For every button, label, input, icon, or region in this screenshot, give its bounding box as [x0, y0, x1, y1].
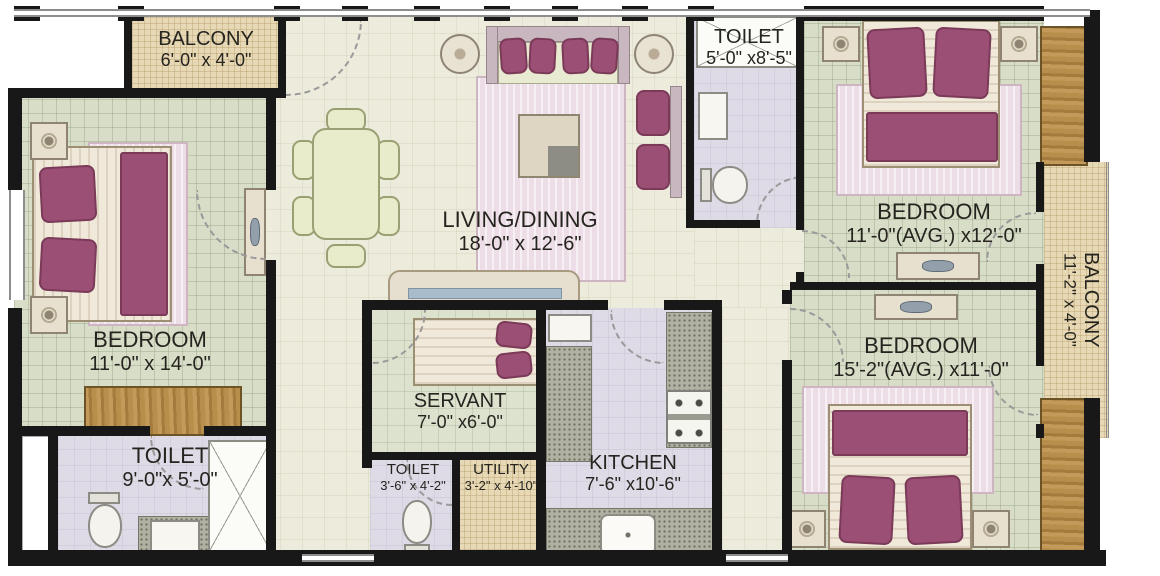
- wall-outer-right-bottom: [1084, 398, 1100, 552]
- wc-bowl: [402, 500, 432, 544]
- nightstand: [822, 26, 860, 62]
- side-table: [440, 34, 480, 74]
- side-table: [634, 34, 674, 74]
- sofa-cushion: [528, 37, 557, 74]
- room-label-servant: SERVANT 7'-0" x6'-0": [380, 390, 540, 433]
- wall-bedroom-living: [266, 96, 276, 190]
- sofa-cushion: [561, 37, 590, 74]
- wall-outer-bottom: [8, 550, 1106, 566]
- room-label-bedroom-left: BEDROOM 11'-0" x 14'-0": [40, 328, 260, 375]
- room-label-bedroom-top-right: BEDROOM 11'-0"(AVG.) x12'-0": [824, 200, 1044, 247]
- nightstand: [972, 510, 1010, 548]
- sofa-cushion: [499, 37, 528, 75]
- wall-bedroom-br-left: [782, 360, 792, 562]
- floor-plan: BALCONY 6'-0" x 4'-0" BEDROOM 11'-0" x 1…: [0, 0, 1160, 576]
- sofa-arm: [618, 26, 630, 84]
- kitchen-counter-left: [546, 346, 592, 462]
- pillow: [904, 475, 963, 546]
- dresser: [874, 294, 958, 320]
- window: [14, 9, 1090, 17]
- wall-servant-left: [362, 300, 372, 468]
- coffee-table-tray: [548, 146, 578, 176]
- wc-bowl: [88, 504, 122, 548]
- pillow: [495, 350, 534, 380]
- wc-tank: [88, 492, 120, 504]
- room-label-toilet-left: TOILET 9'-0"x 5'-0": [80, 444, 260, 491]
- room-label-balcony-right: BALCONY 11'-2" x 4'-0": [1048, 185, 1102, 415]
- dresser-knob: [900, 301, 932, 313]
- wall-bedroom-living: [266, 260, 276, 436]
- tv-screen: [408, 288, 562, 299]
- wall-outer-left: [8, 436, 22, 562]
- room-label-living-dining: LIVING/DINING 18'-0" x 12'-6": [390, 208, 650, 255]
- window: [302, 554, 374, 562]
- shaft: [22, 436, 50, 552]
- wc-tank: [700, 168, 712, 202]
- room-label-bedroom-bottom-right: BEDROOM 15'-2"(AVG.) x11'-0": [806, 334, 1036, 381]
- pillow: [932, 27, 992, 100]
- wall-shaft: [48, 436, 58, 550]
- window: [9, 190, 25, 300]
- window: [938, 9, 994, 17]
- pillow: [495, 320, 534, 350]
- dresser-knob: [922, 260, 954, 272]
- wall-balcony-left: [124, 14, 132, 96]
- wall-kitchen-right: [712, 300, 722, 562]
- wall-bedroom-bottom: [8, 426, 150, 436]
- washbasin: [150, 520, 200, 552]
- window: [844, 9, 900, 17]
- wall-balcony-right-inner: [1036, 264, 1044, 366]
- window: [726, 554, 788, 562]
- wall-toilet-top-left: [686, 14, 694, 228]
- room-label-toilet-small: TOILET 3'-6" x 4'-2": [368, 462, 458, 493]
- wall-servant-top: [362, 300, 608, 310]
- armchair-cushion: [636, 144, 670, 190]
- dining-chair: [326, 244, 366, 268]
- nightstand: [788, 510, 826, 548]
- room-label-balcony-top: BALCONY 6'-0" x 4'-0": [136, 28, 276, 71]
- nightstand: [1000, 26, 1038, 62]
- wc-bowl: [712, 166, 748, 204]
- wardrobe-top-right: [1040, 26, 1088, 166]
- wall-outer-left: [8, 308, 22, 436]
- pillow: [39, 165, 98, 224]
- wall-balcony-right: [278, 14, 286, 92]
- wall-toilet-left-right: [266, 436, 276, 550]
- wall-bedroom-bottom: [204, 426, 276, 436]
- blanket: [866, 112, 998, 162]
- wall-bedroom-br-left: [782, 290, 792, 304]
- nightstand: [30, 122, 68, 160]
- room-label-utility: UTILITY 3'-2" x 4'-10": [456, 462, 546, 493]
- wall-balcony-right-inner: [1036, 424, 1044, 438]
- sofa-arm: [486, 26, 498, 84]
- pillow: [866, 27, 928, 100]
- washbasin: [698, 92, 728, 140]
- room-label-kitchen: KITCHEN 7'-6" x10'-6": [548, 452, 718, 495]
- blanket: [120, 152, 168, 316]
- fridge: [548, 314, 592, 342]
- dresser: [896, 252, 980, 280]
- armchair-cushion: [636, 90, 670, 136]
- room-label-toilet-top: TOILET 5'-0" x8'-5": [696, 26, 802, 69]
- wall-bedroom-top: [8, 88, 286, 98]
- stove: [666, 390, 712, 444]
- wardrobe-bottom-right: [1040, 398, 1088, 562]
- blanket: [832, 410, 968, 456]
- wall-outer-left: [8, 96, 22, 190]
- wall-servant-bottom: [362, 452, 544, 460]
- armchair-back: [670, 86, 682, 198]
- wall-bedrooms-divider: [790, 282, 1044, 290]
- pillow: [838, 475, 895, 546]
- dining-table: [312, 128, 380, 240]
- wall-toilet-top-bottom: [686, 220, 760, 228]
- pillow: [39, 237, 98, 294]
- wall-outer-right-top: [1084, 10, 1100, 162]
- sofa-cushion: [590, 37, 619, 75]
